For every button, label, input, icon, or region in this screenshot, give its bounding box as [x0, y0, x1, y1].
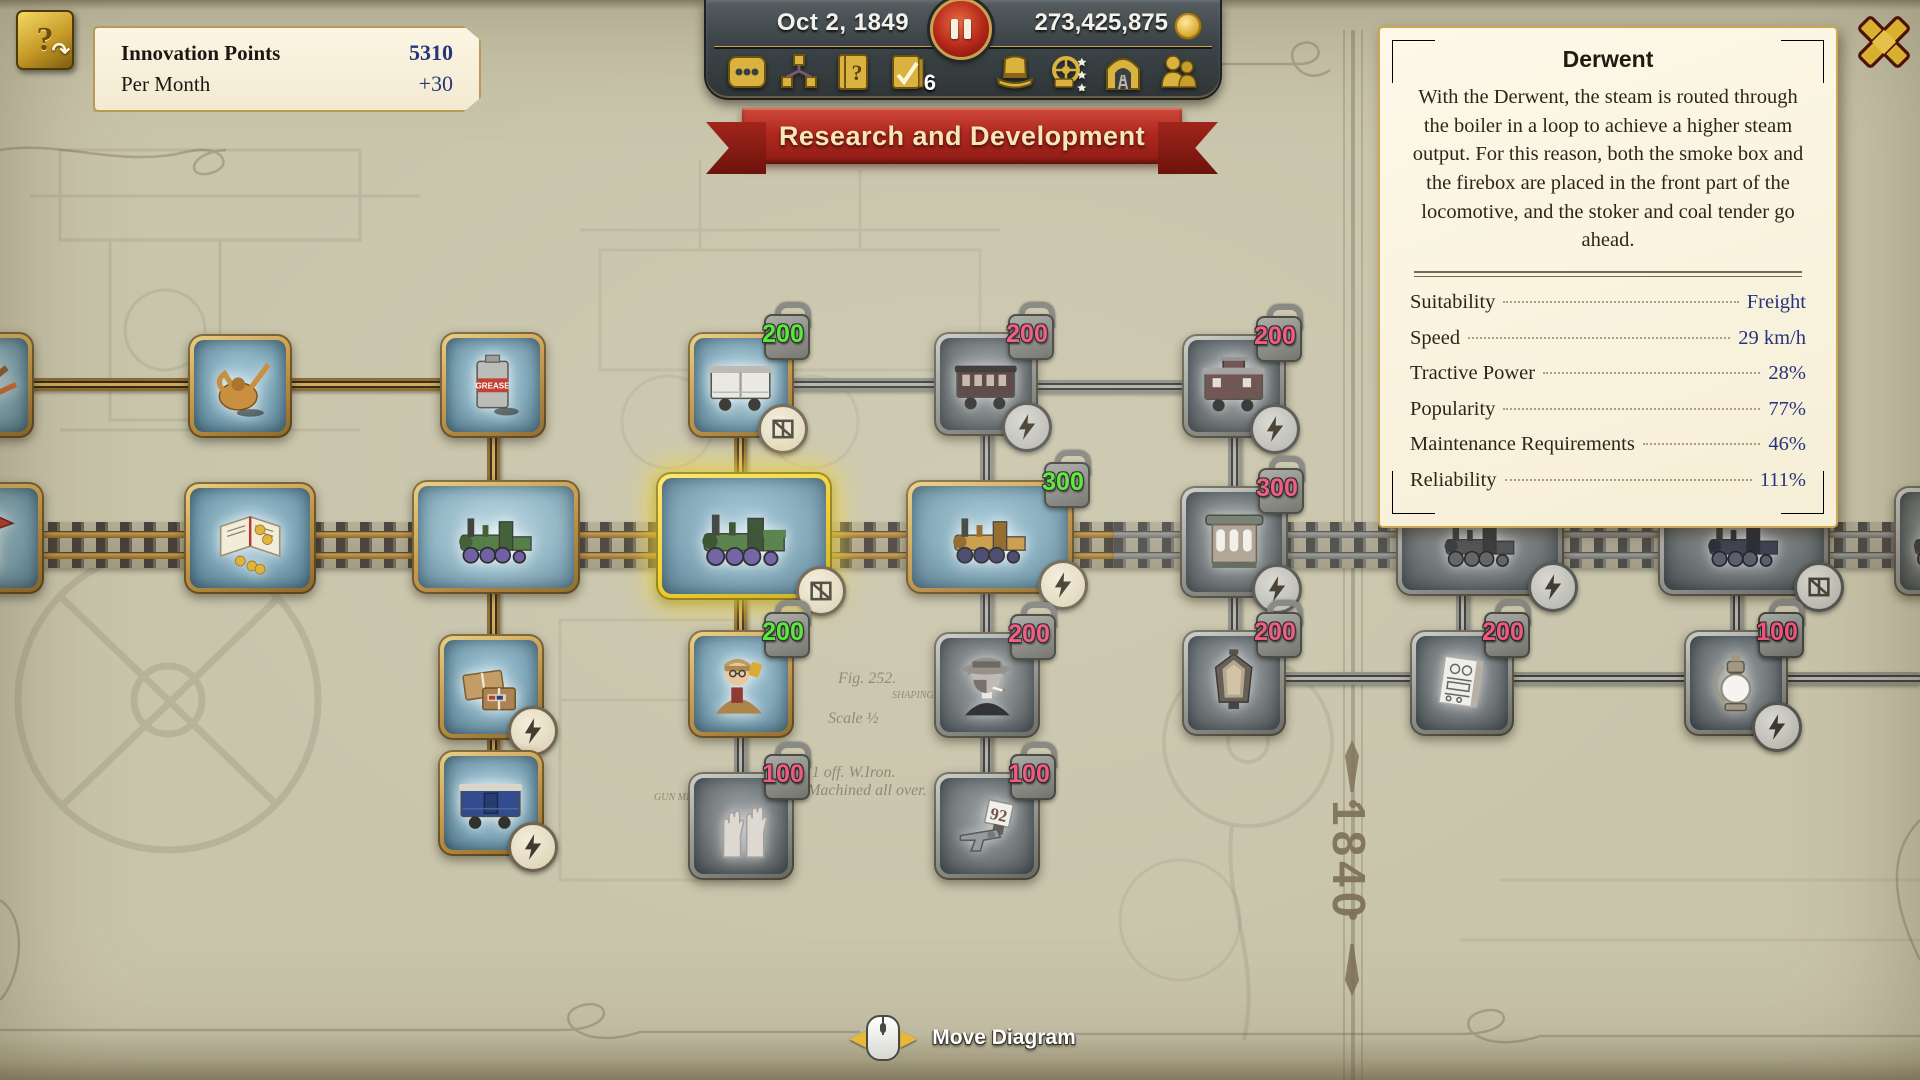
cost-badge-lock: 200	[1256, 612, 1302, 658]
screen-title-banner: Research and Development	[742, 108, 1182, 164]
research-cost: 200	[750, 620, 816, 645]
innovation-points-value: 5310	[409, 40, 453, 66]
close-button[interactable]	[1852, 10, 1916, 74]
connector-gray-h	[1036, 380, 1186, 393]
node-loco-edge-partial[interactable]	[1894, 486, 1920, 596]
svg-text:GREASE: GREASE	[476, 382, 511, 391]
node-white-boxcar[interactable]: 200	[688, 332, 794, 438]
stat-label: Suitability	[1410, 291, 1495, 314]
innovation-book-icon[interactable]: ?↷	[16, 10, 74, 70]
stat-row: Tractive Power28%	[1410, 362, 1806, 398]
per-month-value: +30	[419, 71, 453, 97]
research-cost: 200	[750, 322, 816, 347]
blueprint-note: Fig. 252.	[838, 670, 896, 688]
corner-flourish	[1392, 471, 1435, 514]
move-hint-label: Move Diagram	[932, 1026, 1076, 1050]
arrow-left-icon: ◀	[849, 1025, 866, 1051]
money-display: 273,425,875	[1035, 9, 1168, 37]
node-headlamp[interactable]: 200	[1182, 630, 1286, 736]
research-cost: 300	[1030, 470, 1096, 495]
cost-badge-lock: 100	[1758, 612, 1804, 658]
node-oil-can[interactable]	[188, 334, 292, 438]
pause-bar-icon	[951, 19, 958, 39]
top-status-bar: Oct 2, 1849 273,425,875 ? 6	[704, 0, 1222, 100]
stat-row: SuitabilityFreight	[1410, 291, 1806, 327]
loco-info-panel: Derwent With the Derwent, the steam is r…	[1378, 26, 1838, 528]
top-hat-icon[interactable]	[994, 52, 1036, 92]
node-art-oilcan	[194, 340, 286, 432]
screen-title: Research and Development	[779, 121, 1145, 152]
node-raised-hands[interactable]: 100	[688, 772, 794, 880]
game-date: Oct 2, 1849	[748, 9, 938, 37]
research-cost: 200	[994, 322, 1060, 347]
task-list-icon[interactable]: 6	[886, 52, 928, 92]
research-cost: 200	[1242, 620, 1308, 645]
coin-icon	[1174, 12, 1202, 40]
innovation-points-label: Innovation Points	[121, 41, 280, 66]
personnel-icon[interactable]	[1158, 52, 1200, 92]
node-conductor[interactable]: 200	[688, 630, 794, 738]
task-count-badge: 6	[924, 70, 936, 96]
cost-badge-lock: 200	[764, 314, 810, 360]
cost-badge-lock: 200	[1256, 316, 1302, 362]
dotted-leader	[1643, 443, 1761, 445]
node-account-book[interactable]	[184, 482, 316, 594]
node-loco-researched[interactable]	[412, 480, 580, 594]
connector-brass-v	[487, 436, 500, 486]
node-art-loco_green	[418, 486, 574, 588]
loco-name: Derwent	[1410, 46, 1806, 73]
stat-row: Speed29 km/h	[1410, 327, 1806, 363]
research-tree-icon[interactable]	[778, 52, 820, 92]
loco-description: With the Derwent, the steam is routed th…	[1410, 83, 1806, 255]
divider-rule	[1414, 271, 1802, 277]
express-icon	[1528, 562, 1578, 612]
dotted-leader	[1503, 408, 1760, 410]
express-icon	[1250, 404, 1300, 454]
connector-gray-h	[792, 378, 938, 391]
node-art-kiosk	[0, 488, 38, 588]
research-cost: 100	[1744, 620, 1810, 645]
node-blueprint-paper[interactable]: 200	[1410, 630, 1514, 736]
stat-row: Maintenance Requirements46%	[1410, 433, 1806, 469]
per-month-label: Per Month	[121, 72, 210, 97]
cost-badge-lock: 200	[1008, 314, 1054, 360]
node-passenger-car[interactable]: 200	[934, 332, 1038, 436]
node-art-loco_dark	[1900, 492, 1920, 590]
tunnel-icon[interactable]	[1102, 52, 1144, 92]
loco-stats: SuitabilityFreightSpeed29 km/hTractive P…	[1410, 291, 1806, 504]
node-gangster[interactable]: 200	[934, 632, 1040, 738]
node-horse-tram[interactable]: 300	[1180, 486, 1288, 598]
menu-dots-icon[interactable]	[726, 52, 768, 92]
connector-gray-v	[980, 434, 993, 486]
dotted-leader	[1503, 301, 1738, 303]
era-marker-1840: 1840	[1322, 800, 1376, 922]
dotted-leader	[1468, 337, 1730, 339]
corner-flourish	[1781, 471, 1824, 514]
stat-value: 28%	[1768, 362, 1806, 385]
research-cost: 200	[996, 622, 1062, 647]
stat-value: 77%	[1768, 398, 1806, 421]
node-kiosk-partial[interactable]	[0, 482, 44, 594]
research-cost: 100	[750, 762, 816, 787]
wheel-stars-icon[interactable]	[1048, 52, 1090, 92]
cost-badge-lock: 200	[1010, 614, 1056, 660]
cost-badge-lock: 200	[764, 612, 810, 658]
node-oil-lamp[interactable]: 100	[1684, 630, 1788, 736]
stat-label: Speed	[1410, 327, 1460, 350]
cost-badge-lock: 300	[1258, 468, 1304, 514]
connector-gray-h	[1786, 672, 1920, 685]
dotted-leader	[1505, 479, 1752, 481]
node-revolver-92[interactable]: 92100	[934, 772, 1040, 880]
node-caboose[interactable]: 200	[1182, 334, 1286, 438]
connector-gray-h	[1512, 672, 1688, 685]
corner-flourish	[1781, 40, 1824, 83]
stat-label: Popularity	[1410, 398, 1495, 421]
dotted-leader	[1543, 372, 1760, 374]
stat-value: 29 km/h	[1738, 327, 1806, 350]
connector-brass-v	[487, 592, 500, 640]
express-icon	[508, 822, 558, 872]
node-art-book	[190, 488, 310, 588]
node-rails-partial[interactable]	[0, 332, 34, 438]
node-loco-derwent[interactable]	[656, 472, 832, 600]
innovation-points-panel: Innovation Points 5310 Per Month +30	[93, 26, 481, 112]
cost-badge-lock: 200	[1484, 612, 1530, 658]
stat-label: Tractive Power	[1410, 362, 1535, 385]
move-hint: ◀ ▶ Move Diagram	[0, 1012, 1920, 1064]
pause-bar-icon	[964, 19, 971, 39]
express-icon	[1002, 402, 1052, 452]
stat-value: Freight	[1747, 291, 1806, 314]
stat-value: 46%	[1768, 433, 1806, 456]
research-cost: 100	[996, 762, 1062, 787]
research-cost: 200	[1470, 620, 1536, 645]
cost-badge-lock: 300	[1044, 462, 1090, 508]
connector-gray-v	[1228, 436, 1241, 492]
arrow-curl-icon: ↷	[52, 38, 70, 64]
freight-icon	[758, 404, 808, 454]
corner-flourish	[1392, 40, 1435, 83]
arrow-right-icon: ▶	[900, 1025, 917, 1051]
cost-badge-lock: 100	[1010, 754, 1056, 800]
blueprint-note: SHAPING	[892, 690, 934, 701]
node-blue-boxcar[interactable]	[438, 750, 544, 856]
node-parcels[interactable]	[438, 634, 544, 740]
blueprint-note: Scale ½	[828, 710, 879, 728]
stat-row: Popularity77%	[1410, 398, 1806, 434]
era-divider-dot	[1349, 912, 1357, 920]
express-icon	[1752, 702, 1802, 752]
mouse-body-icon	[866, 1015, 900, 1061]
mouse-drag-icon: ◀ ▶	[844, 1016, 922, 1060]
express-icon	[508, 706, 558, 756]
svg-text:?: ?	[852, 60, 863, 85]
node-art-grease: GREASE	[446, 338, 540, 432]
research-cost: 200	[1242, 324, 1308, 349]
pause-button[interactable]	[930, 0, 992, 60]
node-grease-can[interactable]: GREASE	[440, 332, 546, 438]
cost-badge-lock: 100	[764, 754, 810, 800]
node-loco-gold[interactable]: 300	[906, 480, 1074, 594]
node-art-rails	[0, 338, 28, 432]
connector-gray-h	[1284, 672, 1414, 685]
research-cost: 300	[1244, 476, 1310, 501]
stat-label: Maintenance Requirements	[1410, 433, 1635, 456]
help-book-icon[interactable]: ?	[832, 52, 874, 92]
stat-row: Reliability111%	[1410, 469, 1806, 505]
